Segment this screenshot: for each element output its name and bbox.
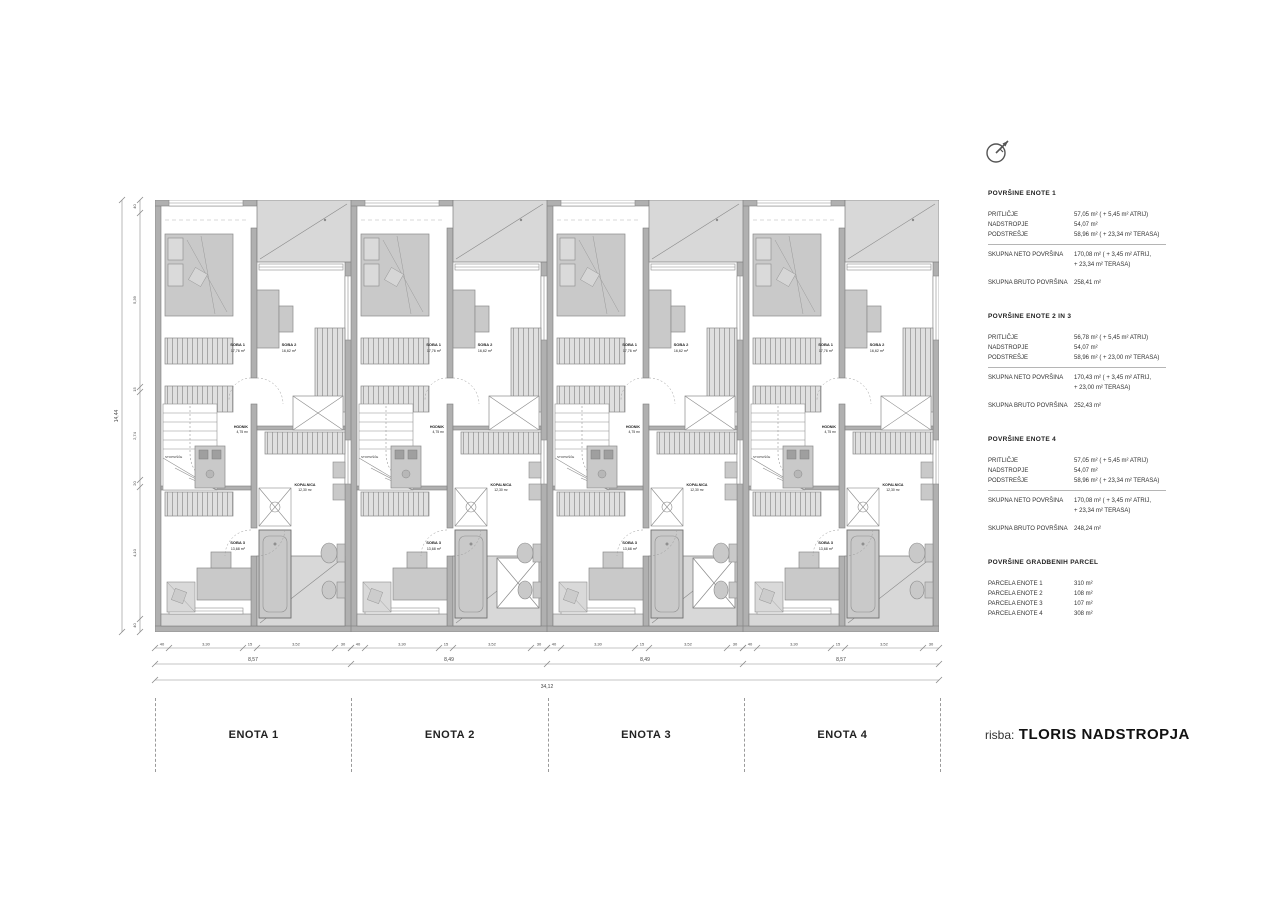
room-label-stopnisce: STOPNIŠČE: [165, 454, 182, 459]
svg-text:HODNIK: HODNIK: [430, 425, 445, 429]
svg-text:SOBA 2: SOBA 2: [870, 342, 886, 347]
area-row-label: PODSTREŠJE: [988, 476, 1074, 486]
area-row-value: 58,96 m² ( + 23,00 m² TERASA): [1074, 353, 1159, 363]
dimension-text: 15: [132, 387, 137, 392]
unit-floor-plan-4: SOBA 1 17,76 m² SOBA 2 16,62 m² STO: [743, 200, 939, 632]
svg-text:16,62 m²: 16,62 m²: [674, 349, 689, 353]
drawing-title-prefix: risba:: [985, 728, 1014, 742]
roof-terrace-top: [257, 200, 351, 270]
parcel-row: PARCELA ENOTE 2108 m²: [988, 589, 1203, 599]
bathtub: [651, 530, 683, 618]
shelf-soba2: [293, 328, 345, 430]
desk-soba2: [649, 290, 685, 348]
dimension-text: 15: [248, 642, 253, 647]
svg-text:SOBA 3: SOBA 3: [230, 540, 246, 545]
unit-label-enota-4: ENOTA 4: [817, 729, 867, 741]
area-row-label: NADSTROPJE: [988, 220, 1074, 230]
vanity: [783, 446, 813, 488]
desk-soba2: [453, 290, 489, 348]
shelf-soba2: [685, 328, 737, 430]
dimension-text: 20: [132, 481, 137, 486]
side-table-soba3: [167, 582, 195, 612]
vertical-dimension-chain: 405,39152,74204,104014,44: [112, 196, 152, 636]
dimension-text: 14,44: [114, 410, 120, 423]
unit-floor-plan-2: SOBA 1 17,76 m² SOBA 2 16,62 m² STO: [351, 200, 547, 632]
dimension-text: 40: [552, 642, 557, 647]
area-row-label: NADSTROPJE: [988, 466, 1074, 476]
toilet: [909, 543, 933, 563]
net-total-row: SKUPNA NETO POVRŠINA170,43 m² ( + 3,45 m…: [988, 373, 1203, 393]
gross-total-row-label: SKUPNA BRUTO POVRŠINA: [988, 278, 1074, 288]
wardrobe: [753, 338, 821, 412]
svg-text:STOPNIŠČE: STOPNIŠČE: [165, 454, 182, 459]
desk-soba3: [589, 552, 643, 600]
room-label-kopalnica: KOPALNICA 12,30 m²: [686, 483, 708, 492]
svg-text:STOPNIŠČE: STOPNIŠČE: [753, 454, 770, 459]
unit-label-cell: ENOTA 1: [155, 698, 351, 772]
net-total-row-value: 170,08 m² ( + 3,45 m² ATRIJ, + 23,34 m² …: [1074, 496, 1151, 516]
net-total-row-label: SKUPNA NETO POVRŠINA: [988, 373, 1074, 393]
dimension-text: 8,57: [248, 657, 258, 663]
wardrobe: [165, 338, 233, 412]
unit-label-enota-1: ENOTA 1: [229, 729, 279, 741]
shower: [259, 488, 291, 526]
svg-text:SOBA 3: SOBA 3: [622, 540, 638, 545]
side-table-soba3: [559, 582, 587, 612]
area-row-label: PRITLIČJE: [988, 210, 1074, 220]
net-total-row-label: SKUPNA NETO POVRŠINA: [988, 496, 1074, 516]
gross-total-row: SKUPNA BRUTO POVRŠINA252,43 m²: [988, 401, 1203, 411]
room-label-soba2: SOBA 2 16,62 m²: [282, 342, 298, 353]
parcel-row: PARCELA ENOTE 1310 m²: [988, 579, 1203, 589]
parcel-row-label: PARCELA ENOTE 1: [988, 579, 1074, 589]
area-row-label: PODSTREŠJE: [988, 353, 1074, 363]
parcel-row-value: 310 m²: [1074, 579, 1093, 589]
dimension-text: 15: [444, 642, 449, 647]
shower: [651, 488, 683, 526]
dimension-text: 3,52: [684, 642, 693, 647]
dimension-text: 34,12: [541, 684, 554, 690]
net-total-row: SKUPNA NETO POVRŠINA170,08 m² ( + 3,45 m…: [988, 250, 1203, 270]
bidet: [714, 581, 737, 599]
gross-total-row-value: 248,24 m²: [1074, 524, 1101, 534]
parcel-row-label: PARCELA ENOTE 3: [988, 599, 1074, 609]
dimension-text: 40: [356, 642, 361, 647]
svg-text:4,75 m²: 4,75 m²: [825, 430, 837, 434]
area-table-title: POVRŠINE ENOTE 4: [988, 436, 1203, 443]
unit-label-enota-2: ENOTA 2: [425, 729, 475, 741]
bidet: [518, 581, 541, 599]
toilet: [517, 543, 541, 563]
svg-text:SOBA 2: SOBA 2: [282, 342, 298, 347]
parcel-row-value: 308 m²: [1074, 609, 1093, 619]
drawing-sheet: 405,39152,74204,104014,44: [0, 0, 1280, 905]
room-label-hodnik: HODNIK 4,75 m²: [822, 425, 837, 434]
net-total-row-label: SKUPNA NETO POVRŠINA: [988, 250, 1074, 270]
bathroom-counter: [853, 432, 933, 454]
drawing-title: TLORIS NADSTROPJA: [1019, 726, 1190, 743]
svg-text:12,30 m²: 12,30 m²: [886, 488, 900, 492]
parcel-row-value: 108 m²: [1074, 589, 1093, 599]
svg-text:STOPNIŠČE: STOPNIŠČE: [557, 454, 574, 459]
dimension-text: 3,30: [398, 642, 407, 647]
room-label-kopalnica: KOPALNICA 12,30 m²: [294, 483, 316, 492]
dimension-text: 3,52: [880, 642, 889, 647]
area-table-title: POVRŠINE ENOTE 2 IN 3: [988, 313, 1203, 320]
sinks: [333, 462, 345, 500]
unit-label-band: ENOTA 1 ENOTA 2 ENOTA 3 ENOTA 4: [155, 698, 941, 772]
room-label-stopnisce: STOPNIŠČE: [557, 454, 574, 459]
north-arrow-icon: [983, 136, 1013, 166]
gross-total-row: SKUPNA BRUTO POVRŠINA248,24 m²: [988, 524, 1203, 534]
svg-text:12,30 m²: 12,30 m²: [494, 488, 508, 492]
wardrobe-soba3: [165, 492, 233, 516]
net-total-row: SKUPNA NETO POVRŠINA170,08 m² ( + 3,45 m…: [988, 496, 1203, 516]
dimension-text: 3,30: [594, 642, 603, 647]
svg-text:16,62 m²: 16,62 m²: [478, 349, 493, 353]
svg-text:KOPALNICA: KOPALNICA: [882, 483, 904, 487]
dimension-text: 3,52: [292, 642, 301, 647]
svg-text:17,76 m²: 17,76 m²: [231, 349, 246, 353]
vanity: [391, 446, 421, 488]
roof-terrace-top: [453, 200, 547, 270]
dimension-text: 8,49: [640, 657, 650, 663]
unit-label-cell: ENOTA 4: [744, 698, 941, 772]
unit-label-enota-3: ENOTA 3: [621, 729, 671, 741]
bathtub: [455, 530, 487, 618]
dimension-text: 2,74: [132, 431, 137, 440]
bidet: [322, 581, 345, 599]
roof-terrace-top: [649, 200, 743, 270]
sinks: [529, 462, 541, 500]
svg-text:SOBA 1: SOBA 1: [818, 342, 834, 347]
title-block: risba: TLORIS NADSTROPJA: [985, 726, 1190, 744]
dimension-text: 5,39: [132, 295, 137, 304]
parcel-table: POVRŠINE GRADBENIH PARCELPARCELA ENOTE 1…: [988, 559, 1203, 619]
parcel-row: PARCELA ENOTE 3107 m²: [988, 599, 1203, 609]
bed: [361, 234, 429, 316]
side-table-soba3: [755, 582, 783, 612]
room-label-soba2: SOBA 2 16,62 m²: [870, 342, 886, 353]
parcel-row: PARCELA ENOTE 4308 m²: [988, 609, 1203, 619]
dimension-text: 8,57: [836, 657, 846, 663]
desk-soba2: [257, 290, 293, 348]
area-row: NADSTROPJE54,07 m²: [988, 220, 1203, 230]
shower: [455, 488, 487, 526]
dimension-text: 30: [341, 642, 346, 647]
dimension-text: 15: [640, 642, 645, 647]
toilet: [713, 543, 737, 563]
shower: [847, 488, 879, 526]
svg-text:4,75 m²: 4,75 m²: [237, 430, 249, 434]
room-label-stopnisce: STOPNIŠČE: [753, 454, 770, 459]
area-row: PODSTREŠJE58,96 m² ( + 23,34 m² TERASA): [988, 476, 1203, 486]
dimension-text: 30: [733, 642, 738, 647]
area-row: NADSTROPJE54,07 m²: [988, 466, 1203, 476]
bathtub: [847, 530, 879, 618]
area-row-value: 54,07 m²: [1074, 343, 1098, 353]
area-row-value: 57,05 m² ( + 5,45 m² ATRIJ): [1074, 456, 1148, 466]
net-total-row-value: 170,08 m² ( + 3,45 m² ATRIJ, + 23,34 m² …: [1074, 250, 1151, 270]
toilet: [321, 543, 345, 563]
svg-text:13,68 m²: 13,68 m²: [623, 547, 638, 551]
desk-soba2: [845, 290, 881, 348]
area-table-title: POVRŠINE ENOTE 1: [988, 190, 1203, 197]
dimension-text: 40: [160, 642, 165, 647]
area-row-value: 56,78 m² ( + 5,45 m² ATRIJ): [1074, 333, 1148, 343]
area-row-label: PRITLIČJE: [988, 456, 1074, 466]
room-label-kopalnica: KOPALNICA 12,30 m²: [490, 483, 512, 492]
svg-text:SOBA 1: SOBA 1: [622, 342, 638, 347]
svg-text:4,75 m²: 4,75 m²: [629, 430, 641, 434]
area-row-label: PRITLIČJE: [988, 333, 1074, 343]
svg-text:HODNIK: HODNIK: [234, 425, 249, 429]
area-row: PRITLIČJE57,05 m² ( + 5,45 m² ATRIJ): [988, 456, 1203, 466]
svg-text:STOPNIŠČE: STOPNIŠČE: [361, 454, 378, 459]
shelf-soba2: [489, 328, 541, 430]
area-row: PRITLIČJE57,05 m² ( + 5,45 m² ATRIJ): [988, 210, 1203, 220]
floor-plans-row: SOBA 1 17,76 m² SOBA 2 16,62 m² STO: [155, 200, 939, 632]
room-label-soba3: SOBA 3 13,68 m²: [230, 540, 246, 551]
area-row-value: 58,96 m² ( + 23,34 m² TERASA): [1074, 476, 1159, 486]
room-label-hodnik: HODNIK 4,75 m²: [234, 425, 249, 434]
bed: [557, 234, 625, 316]
area-row: PODSTREŠJE58,96 m² ( + 23,00 m² TERASA): [988, 353, 1203, 363]
parcel-table-title: POVRŠINE GRADBENIH PARCEL: [988, 559, 1203, 566]
gross-total-row-label: SKUPNA BRUTO POVRŠINA: [988, 401, 1074, 411]
unit-floor-plan-1: SOBA 1 17,76 m² SOBA 2 16,62 m² STO: [155, 200, 351, 632]
area-row: PODSTREŠJE58,96 m² ( + 23,34 m² TERASA): [988, 230, 1203, 240]
divider: [988, 244, 1166, 245]
area-table-2: POVRŠINE ENOTE 2 IN 3PRITLIČJE56,78 m² (…: [988, 313, 1203, 411]
svg-text:SOBA 3: SOBA 3: [426, 540, 442, 545]
wardrobe-soba3: [361, 492, 429, 516]
desk-soba3: [393, 552, 447, 600]
dimension-text: 40: [748, 642, 753, 647]
vanity: [587, 446, 617, 488]
bidet: [910, 581, 933, 599]
area-row: PRITLIČJE56,78 m² ( + 5,45 m² ATRIJ): [988, 333, 1203, 343]
svg-text:13,68 m²: 13,68 m²: [819, 547, 834, 551]
net-total-row-value: 170,43 m² ( + 3,45 m² ATRIJ, + 23,00 m² …: [1074, 373, 1151, 393]
desk-soba3: [785, 552, 839, 600]
divider: [988, 490, 1166, 491]
area-table-1: POVRŠINE ENOTE 1PRITLIČJE57,05 m² ( + 5,…: [988, 190, 1203, 288]
svg-text:16,62 m²: 16,62 m²: [870, 349, 885, 353]
wardrobe: [557, 338, 625, 412]
svg-text:SOBA 1: SOBA 1: [426, 342, 442, 347]
sinks: [725, 462, 737, 500]
dimension-text: 40: [132, 623, 137, 628]
svg-text:SOBA 2: SOBA 2: [478, 342, 494, 347]
roof-terrace-top: [845, 200, 939, 270]
area-row-value: 54,07 m²: [1074, 466, 1098, 476]
gross-total-row: SKUPNA BRUTO POVRŠINA258,41 m²: [988, 278, 1203, 288]
wardrobe-soba3: [753, 492, 821, 516]
bathtub: [259, 530, 291, 618]
dimension-text: 30: [929, 642, 934, 647]
room-label-soba3: SOBA 3 13,68 m²: [426, 540, 442, 551]
svg-text:13,68 m²: 13,68 m²: [427, 547, 442, 551]
svg-text:12,30 m²: 12,30 m²: [298, 488, 312, 492]
divider: [988, 367, 1166, 368]
room-label-hodnik: HODNIK 4,75 m²: [430, 425, 445, 434]
dimension-text: 4,10: [132, 548, 137, 557]
svg-text:13,68 m²: 13,68 m²: [231, 547, 246, 551]
dimension-text: 3,30: [202, 642, 211, 647]
dimension-text: 3,30: [790, 642, 799, 647]
room-label-soba2: SOBA 2 16,62 m²: [478, 342, 494, 353]
room-label-soba2: SOBA 2 16,62 m²: [674, 342, 690, 353]
side-table-soba3: [363, 582, 391, 612]
bathroom-counter: [657, 432, 737, 454]
sinks: [921, 462, 933, 500]
svg-text:17,76 m²: 17,76 m²: [427, 349, 442, 353]
vanity: [195, 446, 225, 488]
gross-total-row-value: 258,41 m²: [1074, 278, 1101, 288]
room-label-hodnik: HODNIK 4,75 m²: [626, 425, 641, 434]
bed: [165, 234, 233, 316]
area-row-value: 58,96 m² ( + 23,34 m² TERASA): [1074, 230, 1159, 240]
svg-text:KOPALNICA: KOPALNICA: [490, 483, 512, 487]
svg-text:12,30 m²: 12,30 m²: [690, 488, 704, 492]
svg-text:SOBA 2: SOBA 2: [674, 342, 690, 347]
dimension-text: 8,49: [444, 657, 454, 663]
svg-text:16,62 m²: 16,62 m²: [282, 349, 297, 353]
shelf-soba2: [881, 328, 933, 430]
area-row-value: 57,05 m² ( + 5,45 m² ATRIJ): [1074, 210, 1148, 220]
area-row-value: 54,07 m²: [1074, 220, 1098, 230]
svg-text:KOPALNICA: KOPALNICA: [294, 483, 316, 487]
wardrobe: [361, 338, 429, 412]
room-label-soba3: SOBA 3 13,68 m²: [622, 540, 638, 551]
svg-text:KOPALNICA: KOPALNICA: [686, 483, 708, 487]
desk-soba3: [197, 552, 251, 600]
horizontal-dimension-chain: 403,30153,5230403,30153,5230403,30153,52…: [150, 640, 950, 696]
gross-total-row-label: SKUPNA BRUTO POVRŠINA: [988, 524, 1074, 534]
area-row-label: NADSTROPJE: [988, 343, 1074, 353]
area-row-label: PODSTREŠJE: [988, 230, 1074, 240]
area-tables-panel: POVRŠINE ENOTE 1PRITLIČJE57,05 m² ( + 5,…: [988, 190, 1203, 644]
unit-label-cell: ENOTA 2: [351, 698, 547, 772]
wardrobe-soba3: [557, 492, 625, 516]
svg-text:HODNIK: HODNIK: [626, 425, 641, 429]
room-label-stopnisce: STOPNIŠČE: [361, 454, 378, 459]
parcel-row-label: PARCELA ENOTE 4: [988, 609, 1074, 619]
area-table-3: POVRŠINE ENOTE 4PRITLIČJE57,05 m² ( + 5,…: [988, 436, 1203, 534]
parcel-row-label: PARCELA ENOTE 2: [988, 589, 1074, 599]
dimension-text: 40: [132, 204, 137, 209]
unit-floor-plan-3: SOBA 1 17,76 m² SOBA 2 16,62 m² STO: [547, 200, 743, 632]
area-row: NADSTROPJE54,07 m²: [988, 343, 1203, 353]
gross-total-row-value: 252,43 m²: [1074, 401, 1101, 411]
svg-text:SOBA 3: SOBA 3: [818, 540, 834, 545]
unit-label-cell: ENOTA 3: [548, 698, 744, 772]
dimension-text: 15: [836, 642, 841, 647]
bathroom-counter: [265, 432, 345, 454]
bathroom-counter: [461, 432, 541, 454]
bed: [753, 234, 821, 316]
room-label-kopalnica: KOPALNICA 12,30 m²: [882, 483, 904, 492]
svg-text:4,75 m²: 4,75 m²: [433, 430, 445, 434]
svg-text:SOBA 1: SOBA 1: [230, 342, 246, 347]
dimension-text: 30: [537, 642, 542, 647]
svg-text:17,76 m²: 17,76 m²: [623, 349, 638, 353]
svg-text:HODNIK: HODNIK: [822, 425, 837, 429]
room-label-soba3: SOBA 3 13,68 m²: [818, 540, 834, 551]
svg-text:17,76 m²: 17,76 m²: [819, 349, 834, 353]
dimension-text: 3,52: [488, 642, 497, 647]
parcel-row-value: 107 m²: [1074, 599, 1093, 609]
